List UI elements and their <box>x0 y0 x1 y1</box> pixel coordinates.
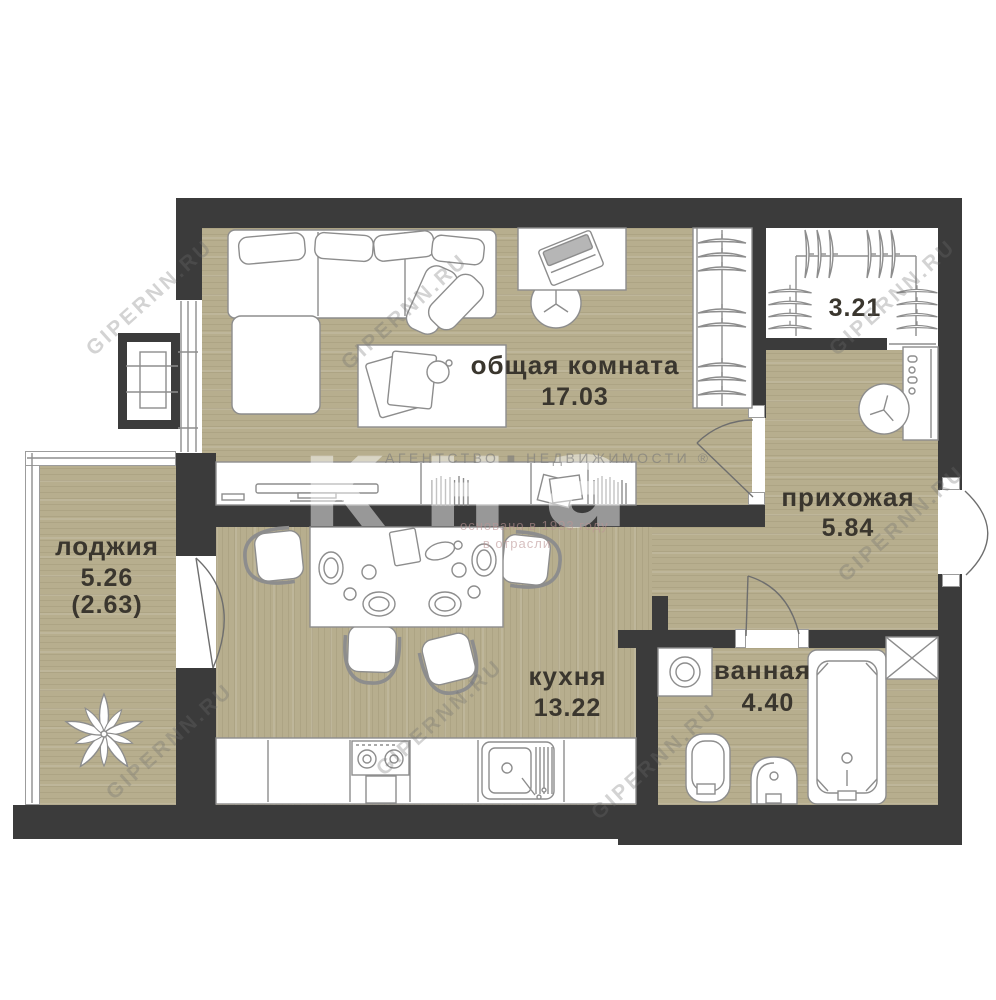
desk <box>518 228 626 290</box>
living-room-label: общая комната <box>465 350 685 381</box>
agency-industry-line: в отрасли <box>462 536 572 551</box>
bathroom-area: 4.40 <box>713 689 823 718</box>
bathroom-sink <box>751 757 797 804</box>
loggia-area: 5.26 <box>57 564 157 593</box>
loggia-area-coefficient: (2.63) <box>52 591 162 620</box>
floorplan-canvas: общая комната 17.03 3.21 прихожая 5.84 к… <box>0 0 996 1000</box>
hallway-label: прихожая <box>778 482 918 513</box>
bathroom-label: ванная <box>700 655 825 686</box>
wardrobe-hangers <box>693 228 752 408</box>
loggia-label: лоджия <box>52 531 162 562</box>
kitchen-counter <box>216 738 636 804</box>
agency-watermark-line: АГЕНТСТВО ■ НЕДВИЖИМОСТИ ® <box>385 450 640 466</box>
plant <box>65 694 144 769</box>
kitchen-label: кухня <box>505 661 630 692</box>
agency-logo-ghost: кна <box>300 408 664 557</box>
agency-founded-line: основано в 1993 году <box>460 518 605 533</box>
kitchen-area: 13.22 <box>510 694 625 723</box>
vent-shaft <box>886 637 938 679</box>
hallway-cabinet <box>903 347 938 440</box>
